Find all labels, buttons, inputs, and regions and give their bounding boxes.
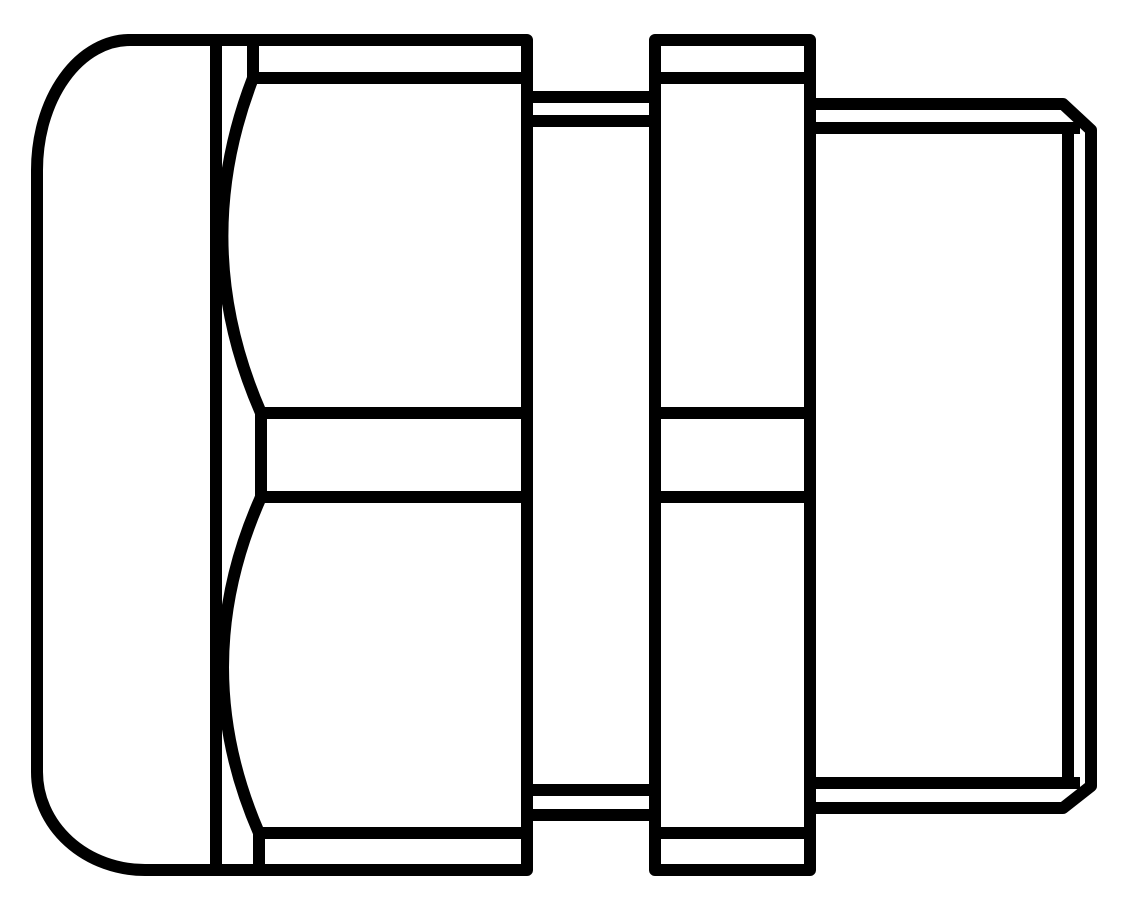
drawing-stage xyxy=(0,0,1134,912)
canvas-background xyxy=(0,0,1134,912)
cable-gland-drawing xyxy=(0,0,1134,912)
